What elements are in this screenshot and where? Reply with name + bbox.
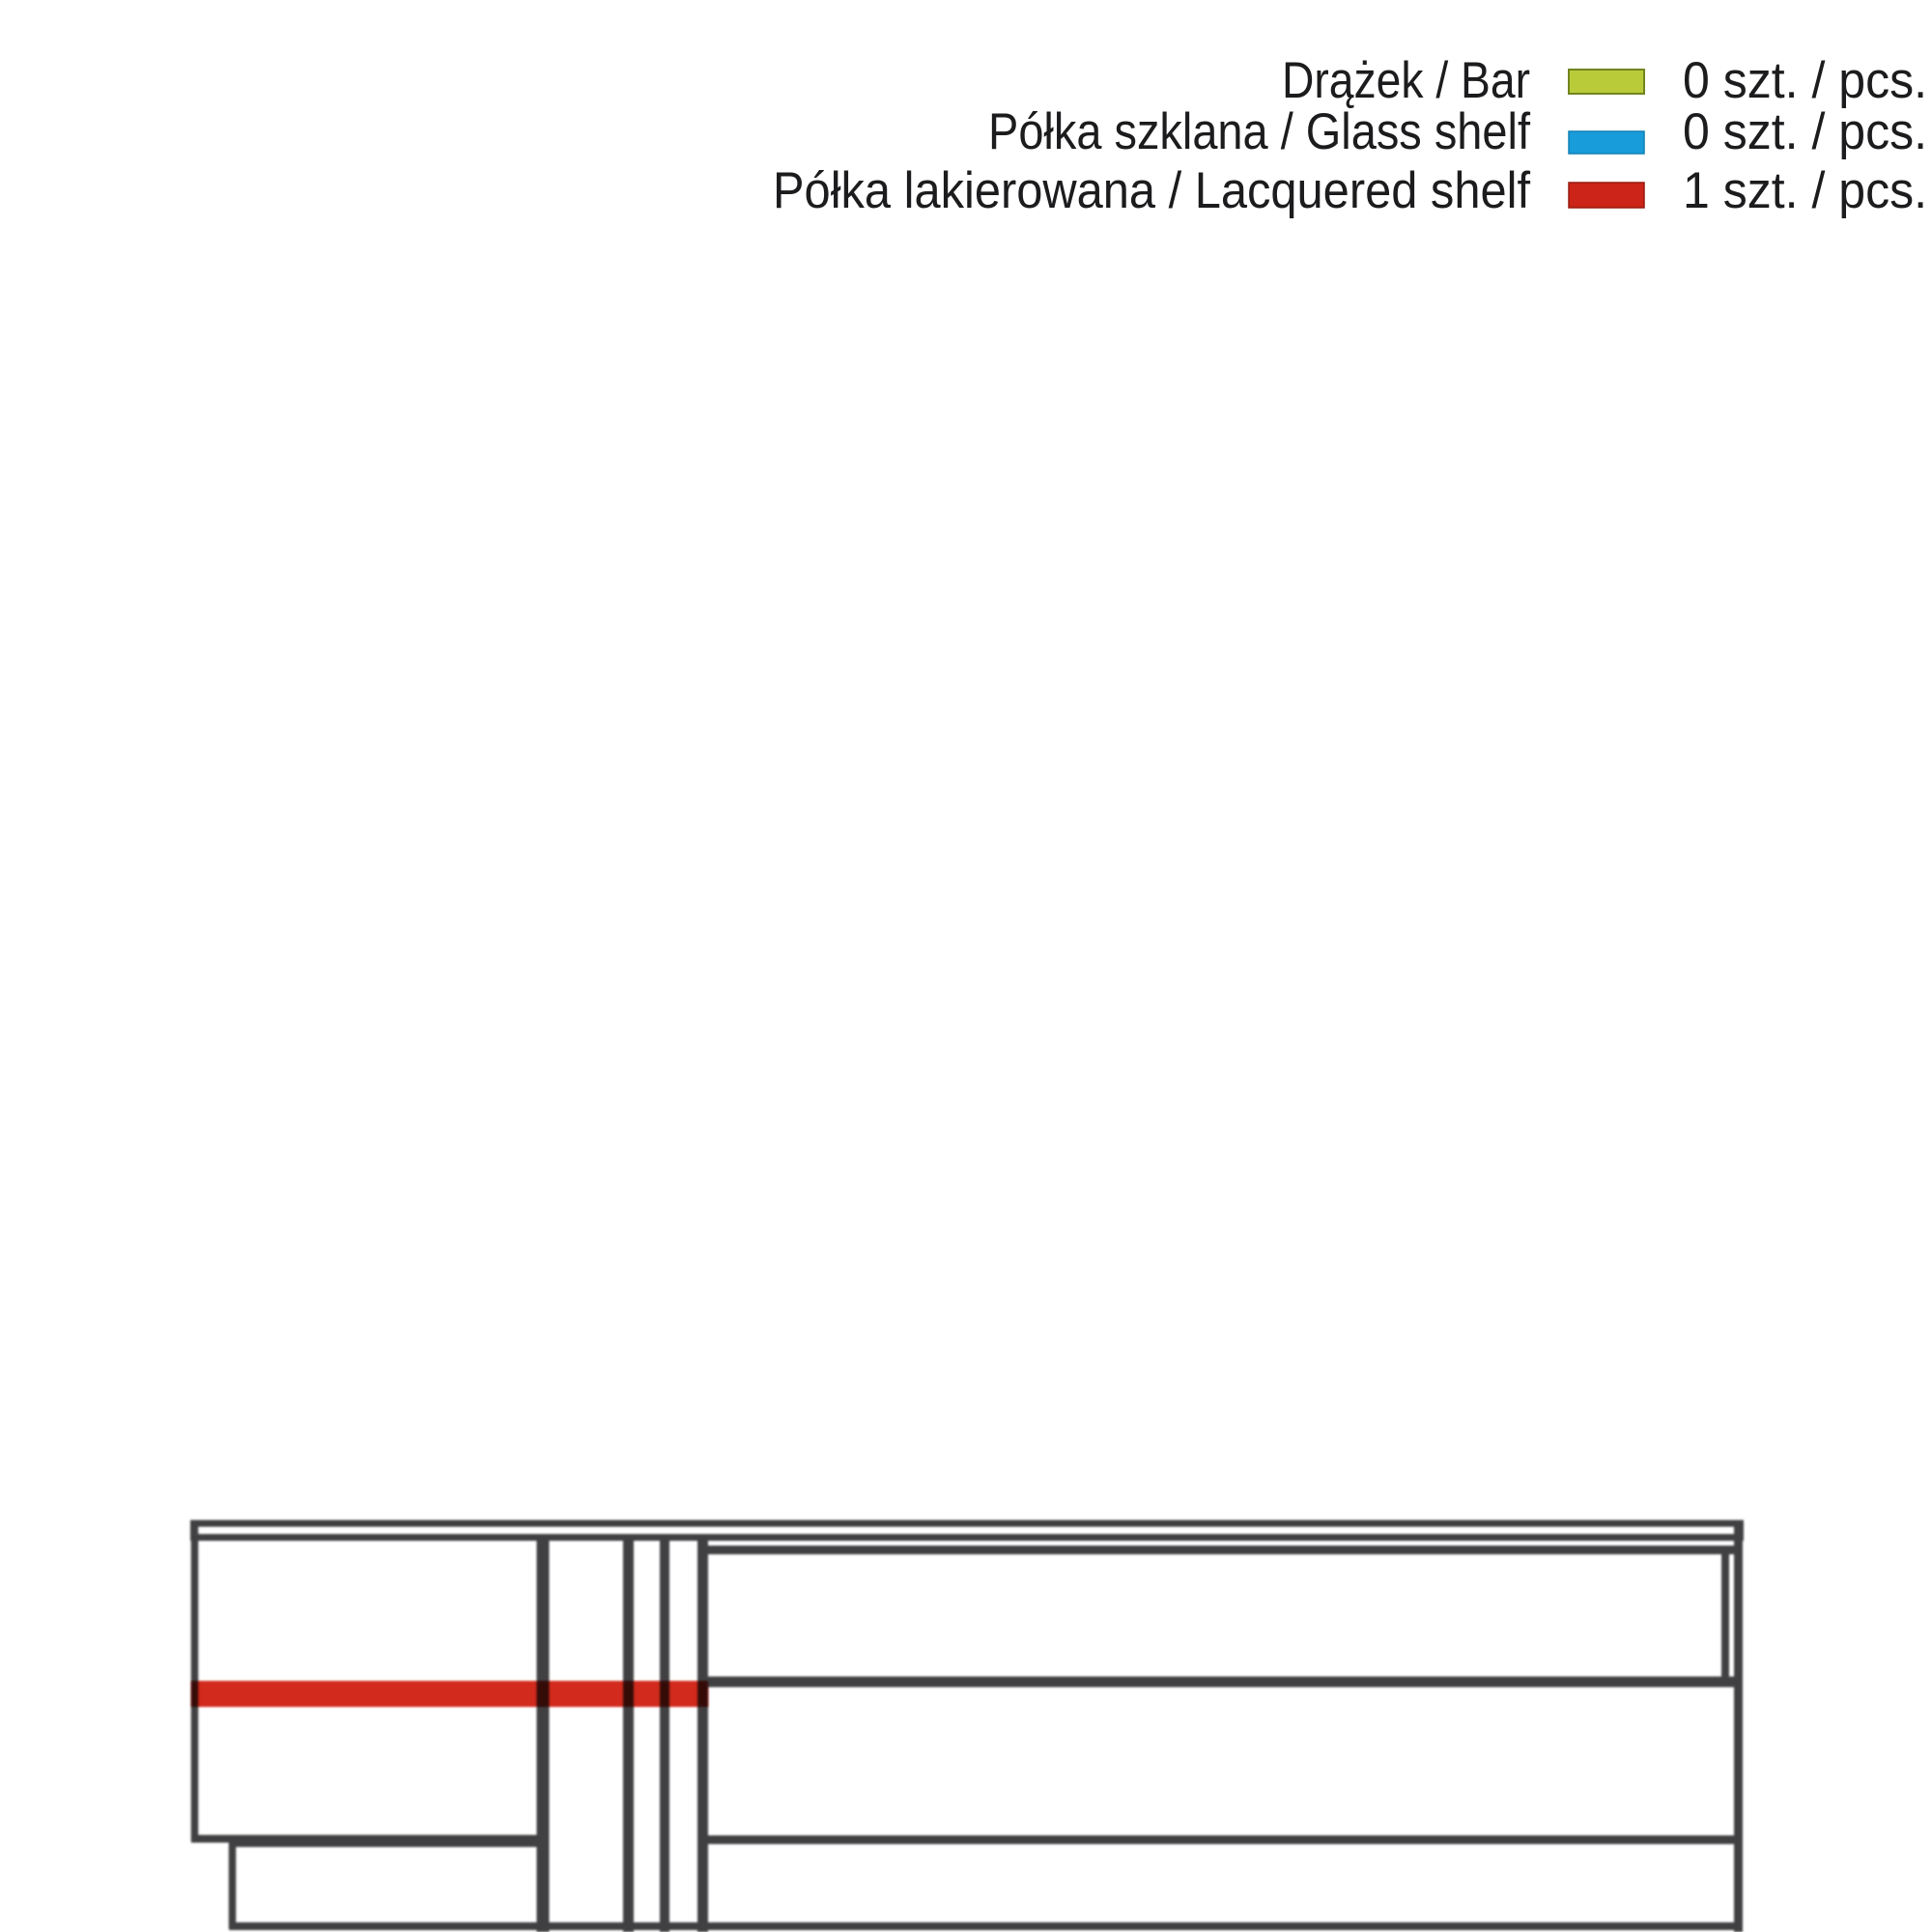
svg-text:Półka szklana / Glass shelf: Półka szklana / Glass shelf (988, 103, 1530, 160)
svg-text:0 szt. / pcs.: 0 szt. / pcs. (1683, 52, 1927, 109)
svg-text:1 szt. / pcs.: 1 szt. / pcs. (1683, 162, 1927, 219)
svg-text:Drążek / Bar: Drążek / Bar (1282, 52, 1530, 109)
svg-text:0 szt. / pcs.: 0 szt. / pcs. (1683, 103, 1927, 160)
svg-text:Półka lakierowana / Lacquered: Półka lakierowana / Lacquered shelf (773, 162, 1530, 219)
